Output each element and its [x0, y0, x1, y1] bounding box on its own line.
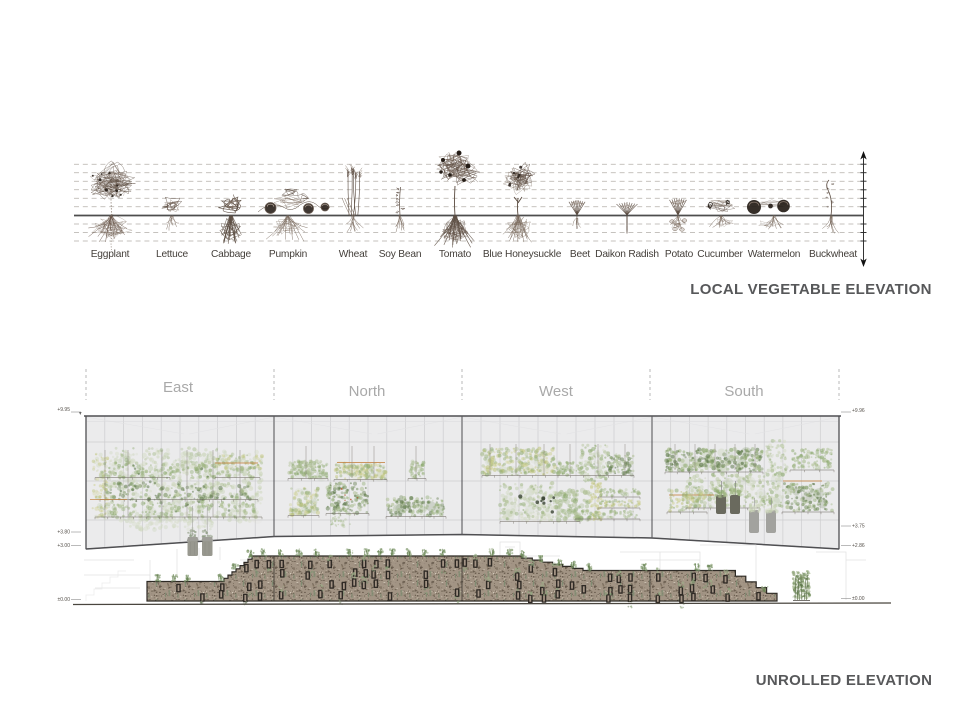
- svg-text:North: North: [349, 383, 386, 400]
- svg-text:Beet: Beet: [570, 249, 591, 260]
- svg-text:Pumpkin: Pumpkin: [269, 249, 307, 260]
- svg-text:Soy Bean: Soy Bean: [379, 249, 422, 260]
- svg-text:Cabbage: Cabbage: [211, 249, 251, 260]
- svg-text:Blue Honeysuckle: Blue Honeysuckle: [483, 249, 562, 260]
- svg-text:West: West: [539, 383, 574, 400]
- svg-text:South: South: [724, 383, 763, 400]
- svg-text:LOCAL VEGETABLE ELEVATION: LOCAL VEGETABLE ELEVATION: [690, 281, 931, 298]
- svg-text:Tomato: Tomato: [439, 249, 472, 260]
- svg-text:Daikon Radish: Daikon Radish: [595, 249, 659, 260]
- svg-text:Potato: Potato: [665, 249, 694, 260]
- svg-text:Cucumber: Cucumber: [697, 249, 743, 260]
- svg-text:East: East: [163, 379, 194, 396]
- svg-text:Watermelon: Watermelon: [748, 249, 801, 260]
- svg-text:Eggplant: Eggplant: [91, 249, 130, 260]
- svg-text:Wheat: Wheat: [339, 249, 368, 260]
- svg-text:Buckwheat: Buckwheat: [809, 249, 857, 260]
- svg-text:Lettuce: Lettuce: [156, 249, 189, 260]
